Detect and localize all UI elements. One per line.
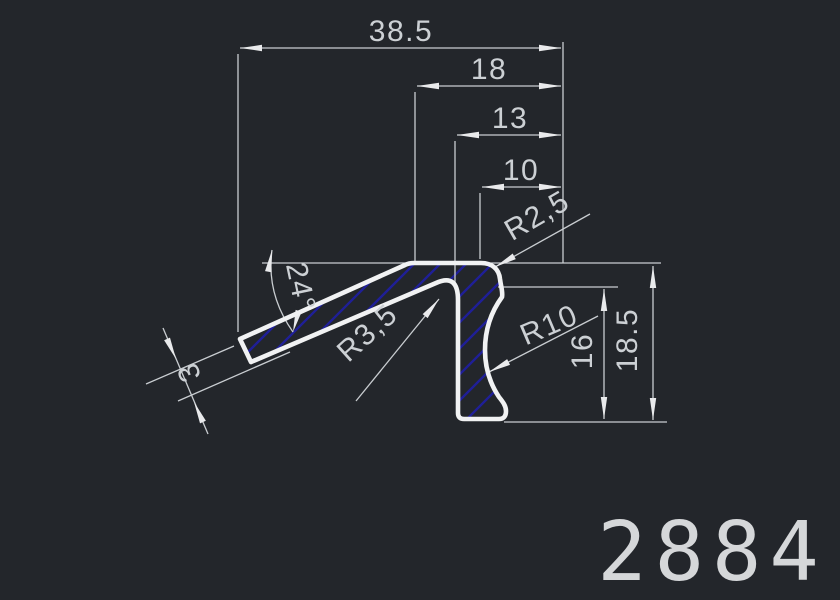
cad-drawing: 38.5 18 13 10 R2,5 R10 R3,5 16 18.5 24° … [0,0,840,600]
cad-viewport: 38.5 18 13 10 R2,5 R10 R3,5 16 18.5 24° … [0,0,840,600]
label-18-5: 18.5 [611,308,644,372]
label-10: 10 [503,154,539,187]
label-overall-width: 38.5 [369,15,433,48]
label-16: 16 [566,333,599,369]
label-18: 18 [471,53,507,86]
label-13: 13 [492,102,528,135]
part-number: 2884 [597,505,826,600]
